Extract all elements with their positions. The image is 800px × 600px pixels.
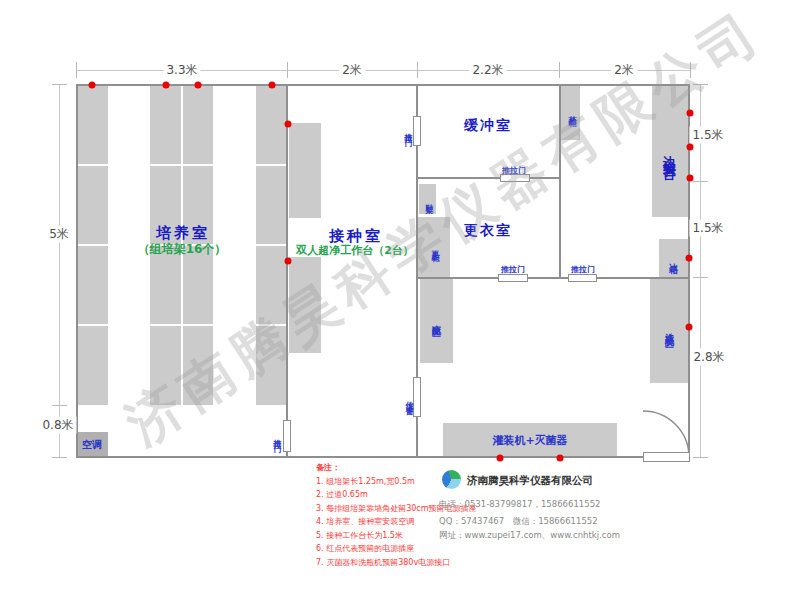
sliding-door [498, 274, 528, 282]
room-changing: 更衣室 [464, 222, 512, 240]
dim-right-3: 2.8米 [690, 349, 727, 366]
shoe-rack-label: 鞋架 [423, 197, 434, 201]
dim-right-2: 1.5米 [689, 220, 726, 237]
cooling-area-label: 凉瓶区 [430, 317, 443, 323]
dim-tick [559, 62, 560, 78]
filling-sterilizer-label: 灌装机+灭菌器 [492, 433, 567, 448]
company-website: 网址：www.zupei17.com、www.cnhtkj.com [439, 530, 620, 542]
wall-buffer-right [559, 84, 561, 279]
power-outlet-dot [557, 455, 564, 462]
power-outlet-dot [687, 144, 694, 151]
power-outlet-dot [269, 82, 276, 89]
sliding-door-label: 推拉门 [501, 264, 525, 275]
dim-tick [287, 62, 288, 78]
dim-tick [76, 62, 77, 78]
power-outlet-dot [285, 121, 292, 128]
fridge-label: 冰箱 [667, 256, 680, 260]
dim-tick [690, 62, 691, 78]
dim-tick [693, 457, 708, 458]
power-outlet-dot [89, 82, 96, 89]
note-item: 7. 灭菌器和洗瓶机预留380v电源接口 [316, 556, 526, 570]
wall-cultivation-inoculation [286, 84, 288, 458]
company-block: 济南腾昊科学仪器有限公司 电话：0531-83799817，1586661155… [437, 466, 657, 556]
power-outlet-dot [686, 324, 693, 331]
bottle-washer-label: 洗瓶机区 [663, 326, 676, 334]
dim-tick [52, 84, 67, 85]
power-outlet-dot [687, 110, 694, 117]
dim-top-2: 2米 [339, 62, 365, 79]
wardrobe-label: 更衣柜 [429, 244, 440, 250]
room-side-bench: 边台实验台 [660, 145, 678, 160]
sliding-door [283, 420, 291, 452]
dim-top-1: 3.3米 [163, 62, 200, 79]
outer-wall [76, 84, 690, 458]
company-name: 济南腾昊科学仪器有限公司 [467, 474, 593, 488]
company-phone: 电话：0531-83799817，15866611552 [439, 499, 600, 511]
power-outlet-dot [497, 455, 504, 462]
dim-right-1: 1.5米 [689, 127, 726, 144]
dim-tick [693, 84, 708, 85]
company-logo-icon [442, 470, 461, 489]
dim-line-left [59, 84, 60, 458]
sliding-door-label: 推拉门 [502, 165, 526, 176]
room-cultivation-sub: （组培架16个） [138, 241, 227, 258]
wall-changing-bottom [417, 277, 690, 279]
room-buffer: 缓冲室 [464, 117, 512, 135]
power-outlet-dot [195, 82, 202, 89]
dim-left-1: 5米 [46, 226, 72, 243]
power-outlet-dot [687, 175, 694, 182]
sliding-door [568, 274, 597, 282]
ac-label: 空调 [82, 438, 102, 452]
power-outlet-dot [285, 258, 292, 265]
dim-left-2: 0.8米 [39, 417, 76, 434]
room-inoculation-sub: 双人超净工作台（2台） [296, 243, 414, 258]
sliding-door [413, 116, 421, 146]
transfer-window [413, 377, 421, 417]
sliding-door-label: 推拉门 [271, 433, 282, 439]
dim-tick [52, 457, 67, 458]
power-outlet-dot [163, 82, 170, 89]
dim-top-4: 2米 [611, 62, 637, 79]
swing-door-leaf [643, 452, 690, 462]
dim-tick [52, 405, 67, 406]
sliding-door-label: 推拉门 [402, 127, 413, 133]
dim-tick [693, 277, 708, 278]
floor-plan: 3.3米 2米 2.2米 2米 5米 0.8米 1.5米 1.5米 2.8米 [0, 0, 800, 600]
transfer-window-label: 传递窗 [403, 395, 414, 401]
company-qq-wechat: QQ：57437467 微信：15866611552 [439, 516, 598, 528]
sliding-door-label: 推拉门 [571, 264, 595, 275]
dim-top-3: 2.2米 [469, 62, 506, 79]
medicine-cabinet-label: 药品柜 [566, 109, 577, 115]
dim-tick [417, 62, 418, 78]
dim-tick [693, 181, 708, 182]
wall-buffer-changing [417, 177, 560, 179]
power-outlet-dot [686, 255, 693, 262]
